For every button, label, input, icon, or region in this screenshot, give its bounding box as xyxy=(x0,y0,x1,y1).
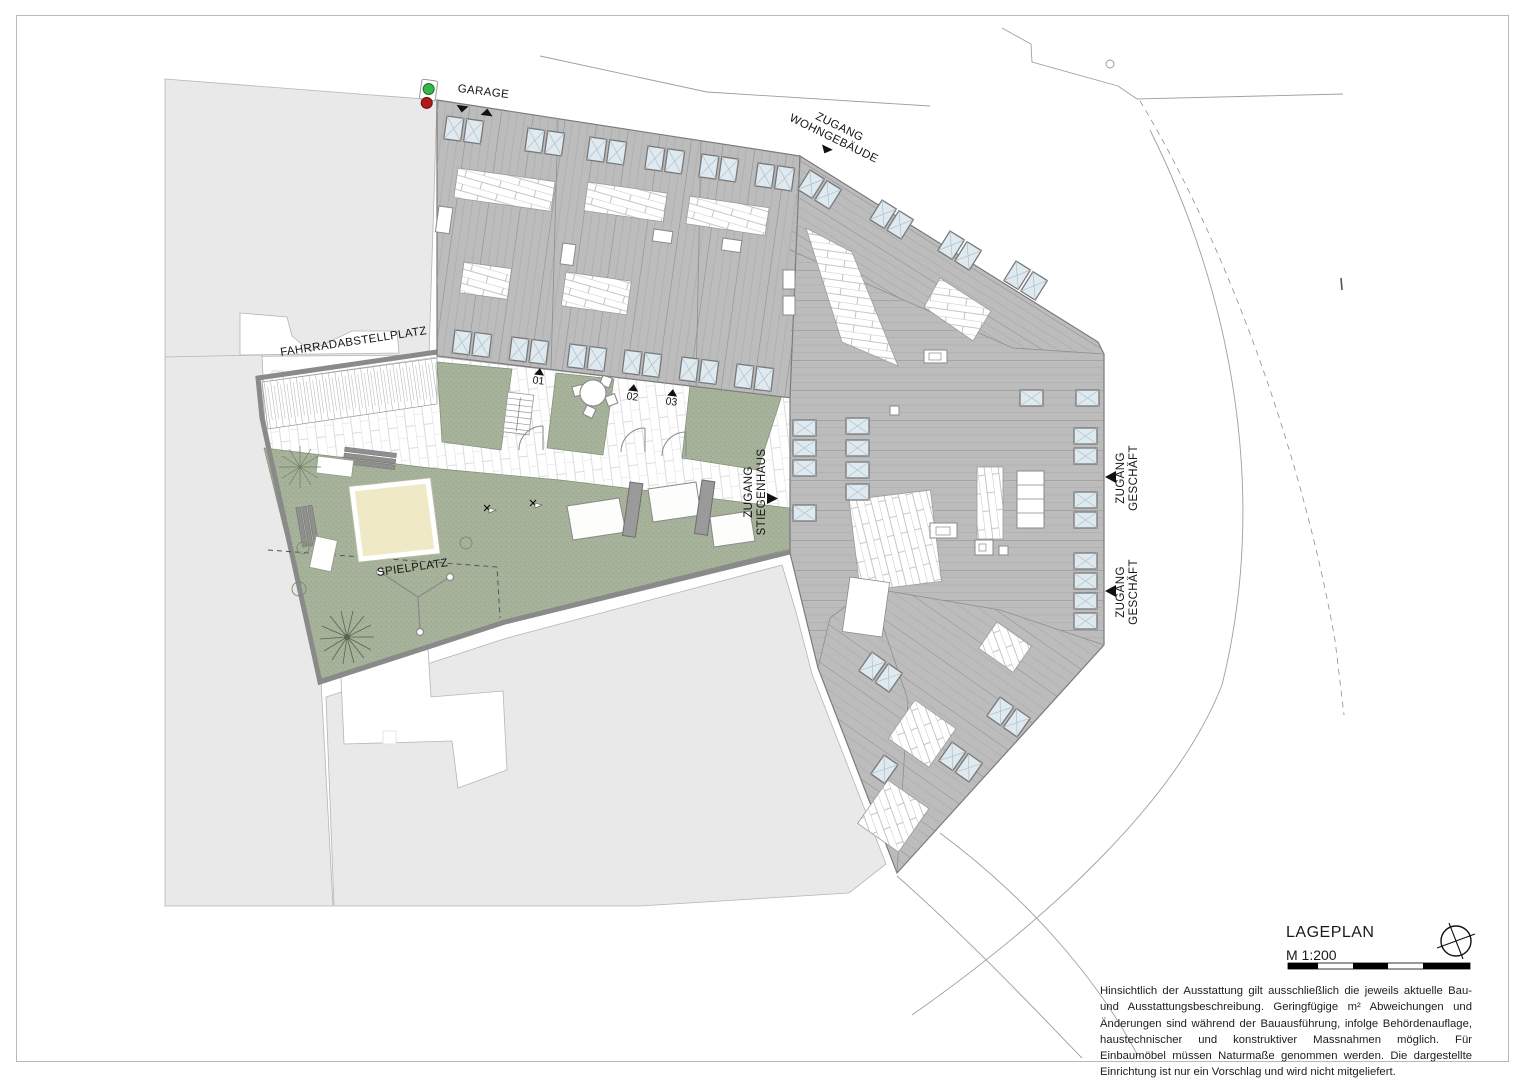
plan-sheet: GARAGE ZUGANG WOHNGEBÄUDE FAHRRADABSTELL… xyxy=(0,0,1528,1080)
lawn-patch-1 xyxy=(437,362,512,450)
entrance-stairs xyxy=(503,392,534,435)
zugang-geschaeft1-line2: GESCHÄFT xyxy=(1128,445,1140,511)
entrance-02-text: 02 xyxy=(626,390,639,403)
zugang-geschaeft2-line2: GESCHÄFT xyxy=(1128,559,1140,625)
planter xyxy=(316,456,354,477)
zugang-geschaeft1-line1: ZUGANG xyxy=(1115,452,1127,504)
site-marker xyxy=(383,731,396,744)
zugang-stiegenhaus-line1: ZUGANG xyxy=(743,466,755,518)
disclaimer-text: Hinsichtlich der Ausstattung gilt aussch… xyxy=(1100,983,1472,1080)
site-plan-drawing: GARAGE ZUGANG WOHNGEBÄUDE FAHRRADABSTELL… xyxy=(0,0,1528,1080)
sandbox xyxy=(352,481,437,559)
entrance-01-text: 01 xyxy=(532,374,545,387)
scale-bar xyxy=(1288,963,1470,969)
plan-title: LAGEPLAN xyxy=(1286,924,1374,942)
zugang-stiegenhaus-line2: STIEGENHAUS xyxy=(756,449,768,536)
gate-mark xyxy=(1341,278,1342,290)
zugang-geschaeft2-line1: ZUGANG xyxy=(1115,566,1127,618)
entrance-03-text: 03 xyxy=(665,395,678,408)
title-block: LAGEPLAN M 1:200 xyxy=(1286,924,1374,963)
parcel-north-west xyxy=(165,79,437,357)
plan-scale: M 1:200 xyxy=(1286,947,1374,963)
